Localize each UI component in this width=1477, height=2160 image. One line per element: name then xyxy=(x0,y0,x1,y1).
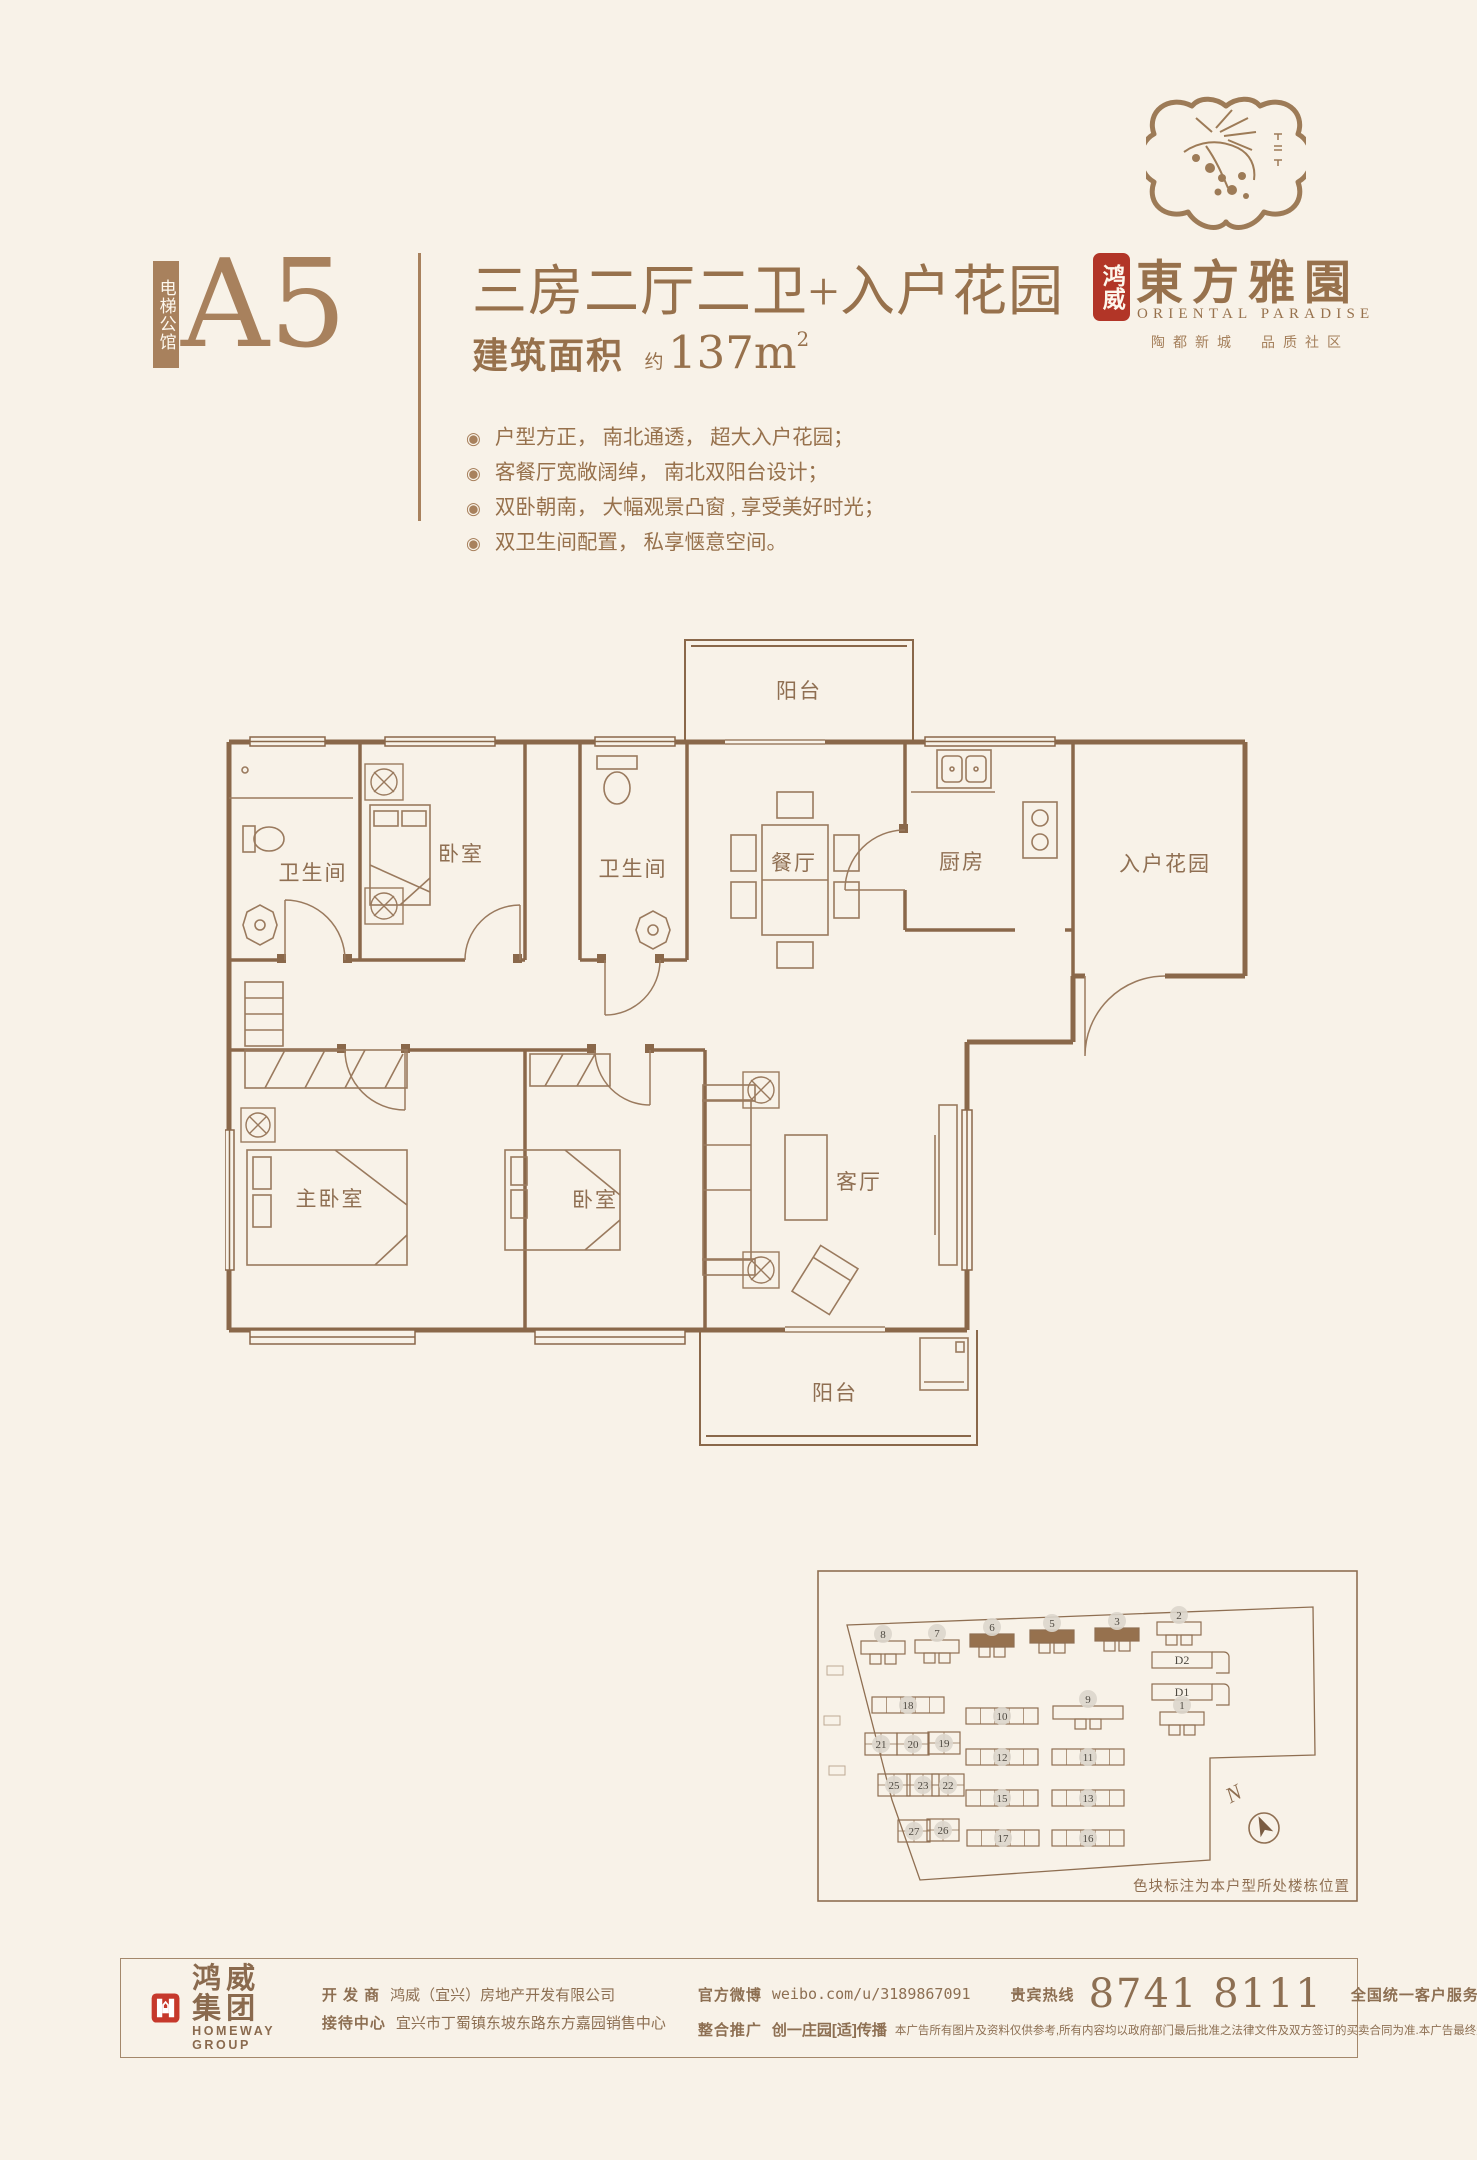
svg-text:10: 10 xyxy=(997,1711,1009,1723)
balcony-walls xyxy=(685,640,977,1445)
room-label-balcony-north: 阳台 xyxy=(776,679,822,703)
svg-text:26: 26 xyxy=(938,1825,950,1837)
siteplan-building: 11 xyxy=(1052,1748,1124,1766)
bullet-icon: ◉ xyxy=(466,421,481,456)
unit-code: A5 xyxy=(181,243,347,365)
svg-text:18: 18 xyxy=(903,1700,915,1712)
siteplan-building: D1 xyxy=(1152,1684,1229,1705)
svg-text:23: 23 xyxy=(918,1780,930,1792)
footer: 鸿威集团 HOMEWAY GROUP 开 发 商 鸿威（宜兴）房地产开发有限公司… xyxy=(120,1958,1358,2058)
wash-basin xyxy=(636,911,670,949)
door-arcs xyxy=(285,830,1165,1110)
windows xyxy=(225,737,1055,1344)
siteplan-building: 8 xyxy=(861,1625,905,1664)
reception-value: 宜兴市丁蜀镇东坡东路东方嘉园销售中心 xyxy=(396,2012,666,2033)
svg-text:25: 25 xyxy=(889,1780,901,1792)
wash-basin xyxy=(243,905,277,945)
siteplan-caption: 色块标注为本户型所处楼栋位置 xyxy=(1133,1877,1350,1895)
north-label: N xyxy=(1220,1778,1247,1808)
reception-label: 接待中心 xyxy=(322,2012,386,2033)
promo-value: 创一庄园[适]传播 xyxy=(772,2019,887,2040)
room-label-living: 客厅 xyxy=(836,1170,882,1194)
svg-text:17: 17 xyxy=(998,1833,1010,1845)
svg-text:5: 5 xyxy=(1049,1618,1055,1630)
feature-item: ◉ 双卧朝南， 大幅观景凸窗 , 享受美好时光； xyxy=(466,491,884,526)
area-row: 建筑面积 约 137m2 xyxy=(472,326,809,379)
stove xyxy=(1023,802,1057,858)
svg-text:9: 9 xyxy=(1085,1694,1091,1706)
svg-text:22: 22 xyxy=(943,1780,954,1792)
brand-name-en: ORIENTAL PARADISE xyxy=(1137,306,1374,323)
sofa xyxy=(703,1085,755,1275)
siteplan-building: 19 xyxy=(928,1732,960,1754)
area-sup: 2 xyxy=(797,327,810,351)
service-hotline-label: 全国统一客户服务热线: xyxy=(1351,1984,1477,2005)
disclaimer: 本广告所有图片及资料仅供参考,所有内容均以政府部门最后批准之法律文件及双方签订的… xyxy=(895,2022,1477,2038)
weibo-value[interactable]: weibo.com/u/3189867091 xyxy=(772,1985,971,2003)
area-value: 137m xyxy=(668,326,797,379)
plan-title: 三房二厅二卫+入户花园 xyxy=(472,246,1064,326)
area-approx: 约 xyxy=(644,352,663,373)
svg-text:19: 19 xyxy=(939,1738,951,1750)
plum-blossoms xyxy=(1192,154,1249,199)
room-label-balcony-south: 阳台 xyxy=(812,1381,858,1405)
siteplan-building: 22 xyxy=(932,1774,964,1796)
footer-logo-cn: 鸿威集团 xyxy=(192,1964,290,2025)
svg-text:2: 2 xyxy=(1176,1610,1182,1622)
svg-text:13: 13 xyxy=(1083,1793,1095,1805)
brand-name-cn: 東方雅園 xyxy=(1136,244,1360,313)
siteplan-building: 10 xyxy=(966,1707,1038,1725)
siteplan-building: 16 xyxy=(1052,1829,1124,1847)
feature-list: ◉ 户型方正， 南北通透， 超大入户花园； ◉ 客餐厅宽敞阔绰， 南北双阳台设计… xyxy=(466,421,884,561)
seal-script-marks xyxy=(1274,134,1282,166)
wardrobe xyxy=(245,982,407,1088)
siteplan-building: 3 xyxy=(1095,1612,1139,1651)
svg-text:15: 15 xyxy=(997,1793,1009,1805)
elevator-mansion-strip: 电梯公馆 xyxy=(153,261,179,368)
room-label-bathroom-1: 卫生间 xyxy=(279,861,348,885)
svg-text:27: 27 xyxy=(909,1826,921,1838)
siteplan-building: 1 xyxy=(1160,1696,1204,1735)
svg-text:11: 11 xyxy=(1083,1752,1094,1764)
siteplan-building: 17 xyxy=(967,1829,1039,1847)
room-label-bedroom-1: 卧室 xyxy=(438,842,484,866)
feature-text: 客餐厅宽敞阔绰， 南北双阳台设计； xyxy=(495,456,828,491)
room-label-entry-garden: 入户花园 xyxy=(1119,852,1211,876)
svg-text:8: 8 xyxy=(880,1629,886,1641)
homeway-logo-icon xyxy=(151,1985,180,2031)
interior-walls xyxy=(229,742,1073,1330)
brand-slogan: 陶都新城 品质社区 xyxy=(1151,332,1349,352)
siteplan-building: 5 xyxy=(1030,1614,1074,1653)
siteplan-building: 9 xyxy=(1053,1690,1123,1729)
svg-text:21: 21 xyxy=(876,1739,887,1751)
vip-hotline-label: 贵宾热线 xyxy=(1011,1984,1075,2005)
header-divider xyxy=(418,253,421,521)
developer-value: 鸿威（宜兴）房地产开发有限公司 xyxy=(390,1984,615,2005)
svg-text:3: 3 xyxy=(1114,1616,1120,1628)
floorplan-drawing: 阳台 卫生间 卧室 卫生间 餐厅 厨房 入户花园 主卧室 卧室 客厅 阳台 xyxy=(225,630,1265,1460)
feature-text: 户型方正， 南北通透， 超大入户花园； xyxy=(495,421,854,456)
brand-emblem-icon xyxy=(1146,92,1306,237)
siteplan-building: 12 xyxy=(966,1748,1038,1766)
outer-walls xyxy=(229,742,1245,1330)
kitchen-sink xyxy=(937,750,991,788)
svg-text:1: 1 xyxy=(1179,1700,1185,1712)
svg-text:20: 20 xyxy=(908,1739,920,1751)
compass-icon: N xyxy=(1220,1778,1279,1843)
dining-table xyxy=(731,792,859,968)
bullet-icon: ◉ xyxy=(466,456,481,491)
toilet xyxy=(597,756,637,804)
water-heater xyxy=(920,1338,968,1390)
siteplan-building: D2 xyxy=(1152,1652,1229,1673)
tv-cabinet xyxy=(935,1105,957,1265)
feature-item: ◉ 户型方正， 南北通透， 超大入户花园； xyxy=(466,421,884,456)
svg-text:16: 16 xyxy=(1083,1833,1095,1845)
bullet-icon: ◉ xyxy=(466,526,481,561)
room-label-bathroom-2: 卫生间 xyxy=(599,857,668,881)
bullet-icon: ◉ xyxy=(466,491,481,526)
siteplan-building: 18 xyxy=(872,1696,944,1714)
footer-address-col: 开 发 商 鸿威（宜兴）房地产开发有限公司 接待中心 宜兴市丁蜀镇东坡东路东方嘉… xyxy=(322,1984,666,2033)
svg-text:12: 12 xyxy=(997,1752,1008,1764)
feature-item: ◉ 客餐厅宽敞阔绰， 南北双阳台设计； xyxy=(466,456,884,491)
siteplan-border xyxy=(818,1571,1357,1901)
feature-item: ◉ 双卫生间配置， 私享惬意空间。 xyxy=(466,526,884,561)
floor-drain xyxy=(242,767,248,773)
siteplan-building: 20 xyxy=(897,1733,929,1755)
siteplan-building: 21 xyxy=(865,1733,897,1755)
bed xyxy=(370,805,430,905)
siteplan-building: 15 xyxy=(966,1789,1038,1807)
siteplan-building: 27 xyxy=(898,1820,930,1842)
svg-text:7: 7 xyxy=(934,1628,940,1640)
footer-logo: 鸿威集团 HOMEWAY GROUP xyxy=(151,1964,290,2053)
feature-text: 双卫生间配置， 私享惬意空间。 xyxy=(495,526,787,561)
siteplan-building: 26 xyxy=(927,1819,959,1841)
room-label-bedroom-2: 卧室 xyxy=(572,1188,618,1212)
toilet xyxy=(243,826,284,852)
siteplan-building: 6 xyxy=(970,1618,1014,1657)
armchair xyxy=(792,1245,858,1314)
brand-seal: 鸿威 xyxy=(1093,253,1130,321)
room-label-master-bedroom: 主卧室 xyxy=(296,1187,365,1211)
svg-text:6: 6 xyxy=(989,1622,995,1634)
footer-contact-col: 官方微博 weibo.com/u/3189867091 贵宾热线 8741 81… xyxy=(698,1976,1477,2040)
siteplan-building: 25 xyxy=(878,1774,910,1796)
offsite-buildings xyxy=(824,1666,845,1775)
area-label: 建筑面积 xyxy=(472,336,624,376)
sliding-doors xyxy=(725,740,885,1332)
feature-text: 双卧朝南， 大幅观景凸窗 , 享受美好时光； xyxy=(495,491,885,526)
siteplan-building: 13 xyxy=(1052,1789,1124,1807)
poster-page: { "header": { "strip_label": "电梯公馆", "un… xyxy=(0,0,1477,2160)
developer-label: 开 发 商 xyxy=(322,1984,380,2005)
brand-seal-text: 鸿威 xyxy=(1098,264,1126,310)
room-label-dining: 餐厅 xyxy=(771,851,817,875)
siteplan: 876532D2D1118109212019121125232215132726… xyxy=(817,1570,1358,1902)
promo-label: 整合推广 xyxy=(698,2019,762,2040)
footer-logo-en: HOMEWAY GROUP xyxy=(192,2024,290,2052)
weibo-label: 官方微博 xyxy=(698,1984,762,2005)
coffee-table xyxy=(785,1135,827,1220)
siteplan-building: 7 xyxy=(915,1624,959,1663)
svg-text:D2: D2 xyxy=(1175,1653,1190,1667)
vip-hotline-number: 8741 8111 xyxy=(1089,1976,1323,2012)
room-label-kitchen: 厨房 xyxy=(939,850,985,874)
